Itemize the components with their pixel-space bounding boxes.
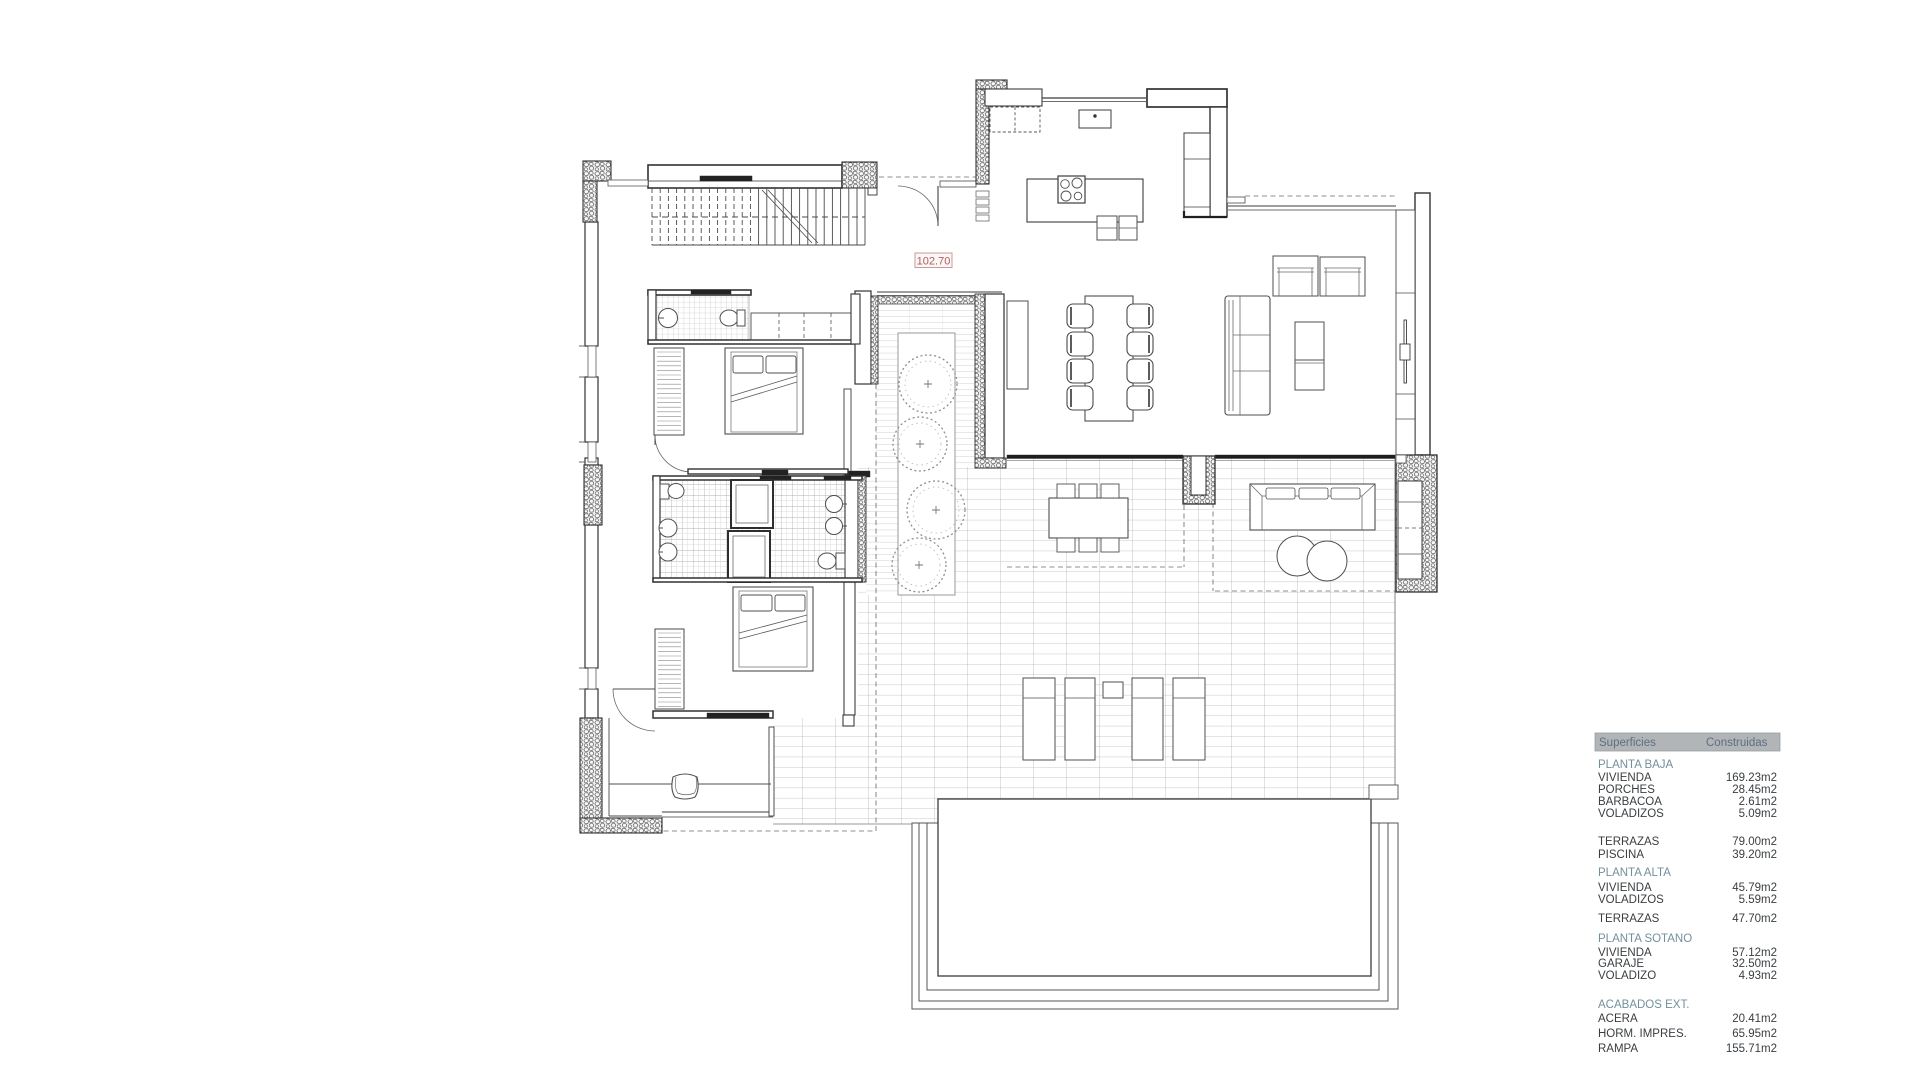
svg-text:RAMPA: RAMPA xyxy=(1598,1043,1638,1055)
svg-text:VOLADIZOS: VOLADIZOS xyxy=(1598,894,1664,906)
svg-text:VOLADIZO: VOLADIZO xyxy=(1598,970,1656,982)
svg-text:ACABADOS EXT.: ACABADOS EXT. xyxy=(1598,999,1689,1011)
svg-text:BARBACOA: BARBACOA xyxy=(1598,796,1662,808)
svg-text:45.79m2: 45.79m2 xyxy=(1732,882,1777,894)
svg-text:VOLADIZOS: VOLADIZOS xyxy=(1598,808,1664,820)
svg-text:PORCHES: PORCHES xyxy=(1598,784,1655,796)
svg-text:TERRAZAS: TERRAZAS xyxy=(1598,913,1660,925)
svg-text:169.23m2: 169.23m2 xyxy=(1726,772,1777,784)
svg-text:TERRAZAS: TERRAZAS xyxy=(1598,836,1660,848)
svg-text:5.09m2: 5.09m2 xyxy=(1739,808,1777,820)
svg-text:79.00m2: 79.00m2 xyxy=(1732,836,1777,848)
svg-text:155.71m2: 155.71m2 xyxy=(1726,1043,1777,1055)
svg-text:4.93m2: 4.93m2 xyxy=(1739,970,1777,982)
svg-text:28.45m2: 28.45m2 xyxy=(1732,784,1777,796)
svg-text:2.61m2: 2.61m2 xyxy=(1739,796,1777,808)
svg-text:VIVIENDA: VIVIENDA xyxy=(1598,772,1652,784)
svg-text:ACERA: ACERA xyxy=(1598,1013,1638,1025)
svg-text:HORM. IMPRES.: HORM. IMPRES. xyxy=(1598,1028,1687,1040)
svg-text:PLANTA BAJA: PLANTA BAJA xyxy=(1598,759,1674,771)
svg-text:20.41m2: 20.41m2 xyxy=(1732,1013,1777,1025)
svg-text:PLANTA SOTANO: PLANTA SOTANO xyxy=(1598,933,1692,945)
svg-text:PISCINA: PISCINA xyxy=(1598,849,1644,861)
svg-text:39.20m2: 39.20m2 xyxy=(1732,849,1777,861)
svg-text:102.70: 102.70 xyxy=(917,256,951,268)
svg-text:32.50m2: 32.50m2 xyxy=(1732,958,1777,970)
svg-text:47.70m2: 47.70m2 xyxy=(1732,913,1777,925)
svg-text:5.59m2: 5.59m2 xyxy=(1739,894,1777,906)
svg-text:Superficies: Superficies xyxy=(1599,737,1656,749)
svg-text:65.95m2: 65.95m2 xyxy=(1732,1028,1777,1040)
svg-text:GARAJE: GARAJE xyxy=(1598,958,1644,970)
svg-text:Construidas: Construidas xyxy=(1706,737,1768,749)
svg-text:VIVIENDA: VIVIENDA xyxy=(1598,882,1652,894)
svg-text:PLANTA ALTA: PLANTA ALTA xyxy=(1598,867,1671,879)
